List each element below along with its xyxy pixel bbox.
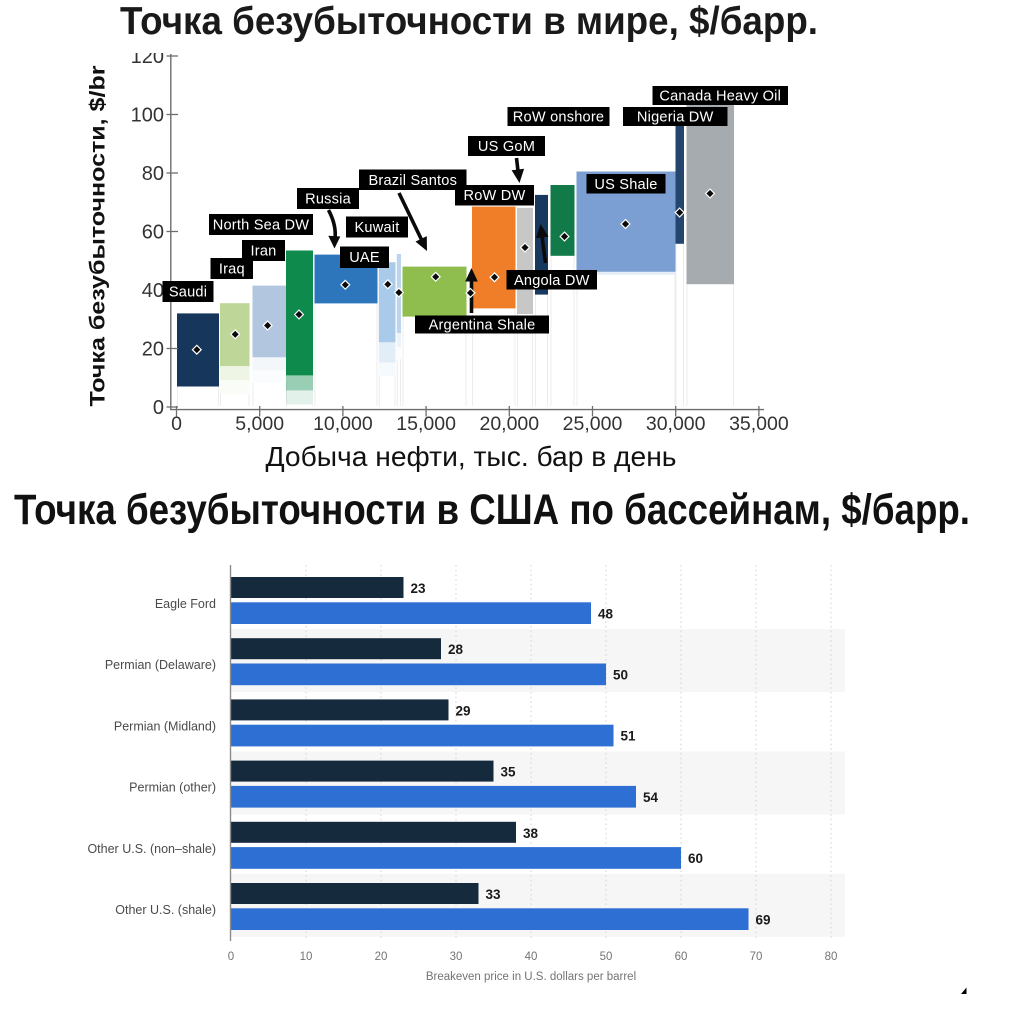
svg-text:40: 40 (525, 951, 538, 963)
svg-text:10: 10 (300, 951, 313, 963)
svg-text:100: 100 (131, 105, 164, 127)
svg-text:20: 20 (142, 339, 164, 361)
svg-text:Iraq: Iraq (219, 262, 245, 278)
svg-text:Точка безубыточности в США по: Точка безубыточности в США по бассейнам,… (14, 486, 970, 534)
svg-text:Breakeven price in U.S. dollar: Breakeven price in U.S. dollars per barr… (426, 971, 636, 983)
svg-text:Angola DW: Angola DW (514, 273, 590, 289)
svg-text:80: 80 (825, 951, 838, 963)
svg-text:Iran: Iran (251, 244, 277, 260)
svg-text:0: 0 (153, 397, 164, 419)
svg-text:0: 0 (228, 951, 234, 963)
svg-text:Saudi: Saudi (169, 285, 207, 301)
svg-text:Добыча нефти, тыс. бар в день: Добыча нефти, тыс. бар в день (266, 441, 677, 472)
svg-text:5,000: 5,000 (235, 413, 284, 435)
svg-text:29: 29 (456, 703, 471, 718)
svg-text:Permian (other): Permian (other) (129, 781, 216, 795)
svg-text:UAE: UAE (349, 250, 380, 266)
svg-text:Other U.S. (non–shale): Other U.S. (non–shale) (87, 842, 216, 856)
svg-text:Permian (Midland): Permian (Midland) (114, 719, 216, 733)
svg-text:33: 33 (486, 887, 502, 902)
svg-text:Brazil Santos: Brazil Santos (369, 173, 458, 189)
svg-text:Russia: Russia (305, 192, 351, 208)
svg-text:Eagle Ford: Eagle Ford (155, 597, 216, 611)
svg-text:40: 40 (142, 280, 164, 302)
svg-text:60: 60 (142, 222, 164, 244)
svg-text:0: 0 (171, 413, 182, 435)
svg-text:60: 60 (688, 851, 703, 866)
svg-text:Other U.S. (shale): Other U.S. (shale) (115, 903, 216, 917)
svg-text:48: 48 (598, 606, 614, 621)
svg-text:80: 80 (142, 163, 164, 185)
svg-text:70: 70 (750, 951, 763, 963)
svg-text:35: 35 (501, 765, 517, 780)
svg-text:50: 50 (600, 951, 613, 963)
svg-text:10,000: 10,000 (313, 413, 373, 435)
svg-text:38: 38 (523, 826, 539, 841)
svg-text:Canada Heavy Oil: Canada Heavy Oil (659, 89, 781, 105)
svg-text:28: 28 (448, 642, 464, 657)
svg-text:Permian (Delaware): Permian (Delaware) (105, 658, 216, 672)
svg-text:25,000: 25,000 (563, 413, 623, 435)
svg-text:60: 60 (675, 951, 688, 963)
svg-text:69: 69 (756, 912, 771, 927)
svg-text:15,000: 15,000 (396, 413, 456, 435)
svg-text:20,000: 20,000 (479, 413, 539, 435)
svg-text:35,000: 35,000 (729, 413, 789, 435)
svg-text:20: 20 (375, 951, 388, 963)
svg-text:Точка безубыточности, $/br: Точка безубыточности, $/br (87, 66, 110, 407)
svg-text:54: 54 (643, 790, 659, 805)
svg-text:US GoM: US GoM (478, 139, 535, 155)
svg-text:US Shale: US Shale (594, 177, 657, 193)
svg-text:50: 50 (613, 668, 628, 683)
svg-text:Nigeria DW: Nigeria DW (637, 110, 714, 126)
svg-text:30,000: 30,000 (646, 413, 706, 435)
svg-text:Kuwait: Kuwait (354, 220, 399, 236)
svg-text:51: 51 (621, 729, 637, 744)
svg-text:23: 23 (411, 581, 427, 596)
svg-text:North Sea DW: North Sea DW (213, 218, 310, 234)
svg-text:RoW onshore: RoW onshore (513, 110, 604, 126)
svg-text:Точка безубыточности в мире, $: Точка безубыточности в мире, $/барр. (120, 0, 818, 43)
svg-text:Argentina Shale: Argentina Shale (429, 318, 536, 334)
svg-text:30: 30 (450, 951, 463, 963)
svg-text:RoW DW: RoW DW (464, 188, 526, 204)
